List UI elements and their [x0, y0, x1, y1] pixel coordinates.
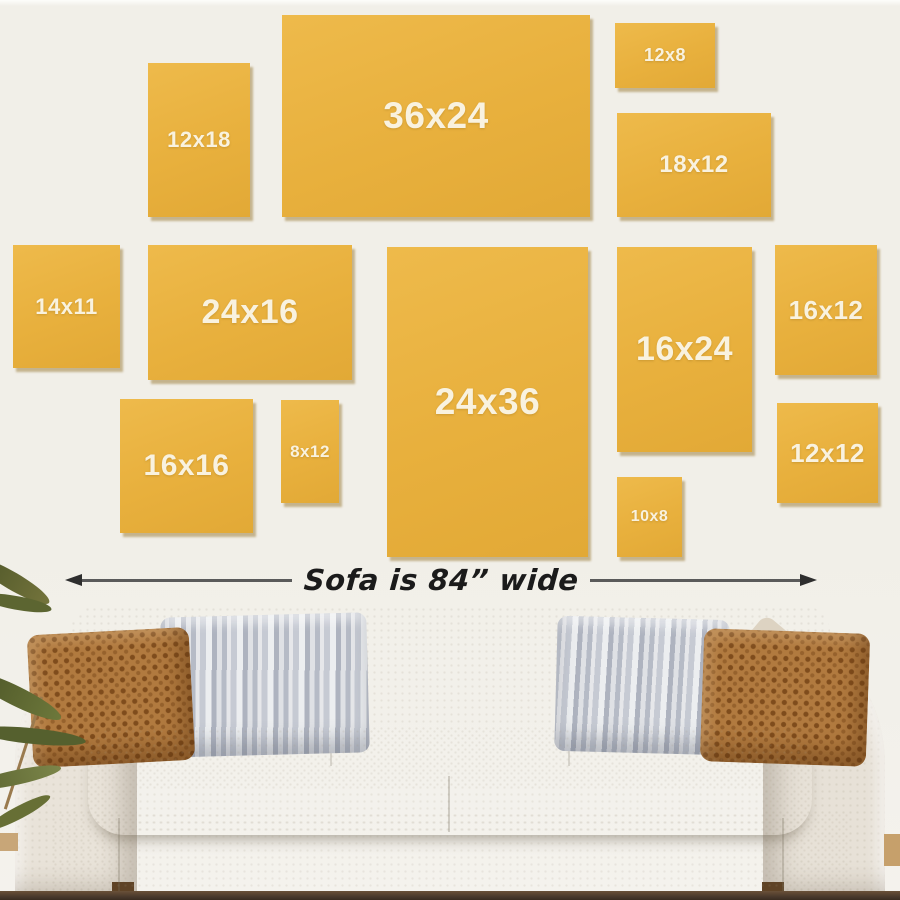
size-label: 36x24: [383, 95, 488, 137]
sofa-base: [52, 812, 848, 896]
size-tile-36x24: 36x24: [282, 15, 590, 217]
size-label: 12x18: [167, 127, 231, 153]
size-label: 14x11: [35, 294, 97, 320]
size-tile-12x18: 12x18: [148, 63, 250, 217]
size-tile-12x8: 12x8: [615, 23, 715, 88]
size-tile-8x12: 8x12: [281, 400, 339, 503]
size-label: 18x12: [659, 151, 728, 179]
sofa-base-seam: [782, 818, 784, 892]
sofa-base-seam: [118, 818, 120, 892]
size-label: 8x12: [290, 442, 330, 462]
size-label: 16x12: [789, 295, 864, 326]
size-label: 12x12: [790, 438, 865, 469]
size-label: 16x16: [144, 449, 230, 483]
wall-art-size-guide: 12x1836x2412x818x1214x1124x1624x3616x241…: [0, 0, 900, 900]
arrow-line-left: [82, 579, 292, 582]
arrow-line-right: [590, 579, 800, 582]
size-label: 24x36: [435, 381, 540, 423]
size-tile-24x16: 24x16: [148, 245, 352, 380]
size-tile-10x8: 10x8: [617, 477, 682, 557]
size-label: 12x8: [644, 45, 686, 66]
sofa-width-label: Sofa is 84” wide: [302, 563, 579, 597]
size-tile-16x16: 16x16: [120, 399, 253, 533]
sofa-width-arrow: Sofa is 84” wide: [65, 556, 817, 604]
size-label: 24x16: [201, 293, 298, 332]
size-tile-14x11: 14x11: [13, 245, 120, 368]
size-label: 10x8: [631, 508, 669, 526]
size-tile-18x12: 18x12: [617, 113, 771, 217]
arrow-left-icon: [65, 574, 82, 586]
floor-patch-left: [0, 833, 18, 851]
arrow-right-icon: [800, 574, 817, 586]
floor-patch-right: [884, 834, 900, 866]
size-tile-16x12: 16x12: [775, 245, 877, 375]
floor-strip: [0, 891, 900, 900]
size-tile-16x24: 16x24: [617, 247, 752, 452]
size-tile-24x36: 24x36: [387, 247, 588, 557]
size-tile-12x12: 12x12: [777, 403, 878, 503]
size-label: 16x24: [636, 330, 733, 369]
